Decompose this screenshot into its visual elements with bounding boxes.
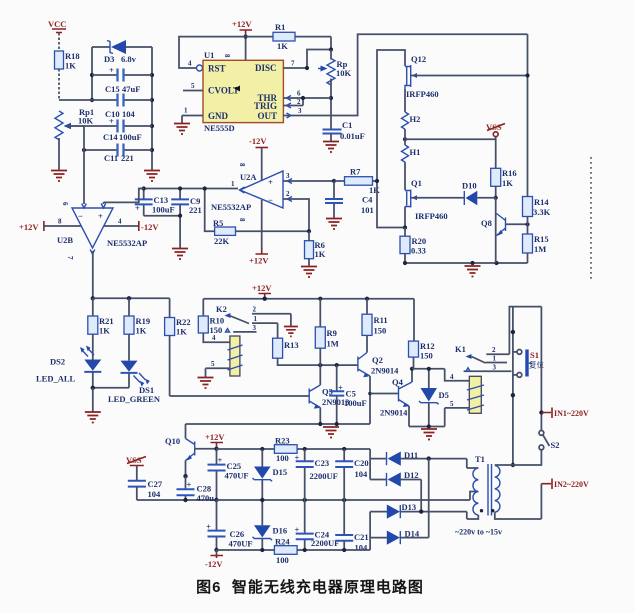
svg-text:8: 8 [238,163,246,167]
svg-text:C11: C11 [104,153,118,163]
svg-text:OUT: OUT [257,111,277,121]
svg-text:H1: H1 [410,147,421,157]
svg-text:C27: C27 [148,479,163,489]
svg-text:1: 1 [493,354,497,362]
svg-text:R11: R11 [374,315,388,325]
svg-text:1K: 1K [277,41,288,51]
svg-text:2: 2 [286,190,290,198]
svg-text:6: 6 [297,90,301,98]
svg-text:−: − [268,195,273,205]
svg-text:+: + [295,525,300,535]
svg-text:+: + [109,116,114,126]
svg-text:+12V: +12V [249,256,269,266]
svg-text:Q1: Q1 [411,178,422,188]
svg-text:Q10: Q10 [165,436,180,446]
svg-text:-12V: -12V [141,222,159,232]
svg-text:Q4: Q4 [392,377,404,387]
svg-text:+12V: +12V [205,432,225,442]
svg-text:IRFP460: IRFP460 [406,89,439,99]
svg-text:10K: 10K [336,68,352,78]
svg-text:100: 100 [276,453,289,463]
svg-text:−: − [78,211,83,221]
svg-text:IN1~220V: IN1~220V [554,409,589,418]
svg-text:4: 4 [118,218,122,226]
svg-text:5: 5 [211,360,215,368]
svg-text:R21: R21 [99,316,114,326]
svg-text:TRIG: TRIG [254,101,277,111]
svg-text:VCC: VCC [48,19,66,29]
svg-text:C23: C23 [315,458,330,468]
svg-text:4: 4 [212,334,216,342]
svg-text:1M: 1M [534,244,546,254]
svg-text:+: + [109,65,114,75]
svg-text:104: 104 [355,469,369,479]
svg-text:C4: C4 [362,195,373,205]
svg-text:DISC: DISC [255,63,277,73]
svg-text:C5: C5 [346,389,356,399]
svg-text:D13: D13 [402,502,417,512]
svg-text:R18: R18 [65,51,80,61]
svg-text:D3: D3 [104,54,114,64]
svg-text:GND: GND [208,111,229,121]
svg-text:D14: D14 [405,529,420,539]
svg-text:+: + [295,453,300,463]
svg-text:+12V: +12V [252,283,272,293]
svg-text:LED_ALL: LED_ALL [36,374,76,384]
svg-text:RST: RST [208,64,226,74]
svg-text:3.3K: 3.3K [533,207,551,217]
svg-text:2N9014: 2N9014 [371,366,399,376]
svg-text:0.33: 0.33 [411,246,426,256]
svg-text:100uF: 100uF [152,205,175,215]
svg-text:7: 7 [291,60,295,68]
svg-text:Q8: Q8 [481,218,492,228]
svg-text:-12V: -12V [205,559,223,569]
svg-text:470u: 470u [197,493,215,503]
svg-text:D12: D12 [404,470,419,480]
svg-text:C15: C15 [105,84,120,94]
svg-text:R20: R20 [412,236,427,246]
svg-text:100uF: 100uF [119,132,142,142]
svg-text:150: 150 [420,351,433,361]
svg-text:IN2~220V: IN2~220V [554,480,589,489]
svg-text:C14: C14 [103,132,118,142]
svg-text:221: 221 [121,153,134,163]
svg-text:470UF: 470UF [229,539,253,549]
svg-text:Q12: Q12 [411,54,426,64]
svg-text:4: 4 [450,373,454,381]
svg-text:3: 3 [298,107,302,115]
svg-text:5: 5 [450,400,454,408]
svg-text:5: 5 [191,82,195,90]
svg-text:K2: K2 [216,304,227,314]
svg-text:1: 1 [184,107,188,115]
svg-text:1K: 1K [65,61,76,71]
svg-text:1: 1 [254,315,258,323]
svg-text:4: 4 [188,60,192,68]
svg-text:C28: C28 [197,484,212,494]
svg-text:1K: 1K [136,326,147,336]
svg-text:+: + [135,203,140,213]
svg-text:U2B: U2B [57,235,73,245]
svg-text:100: 100 [276,555,289,565]
svg-text:IRFP460: IRFP460 [415,211,448,221]
svg-text:6: 6 [61,202,69,206]
svg-text:2: 2 [253,306,257,314]
svg-text:3: 3 [286,172,290,180]
svg-text:+12V: +12V [232,19,252,29]
svg-text:1K: 1K [99,326,110,336]
svg-text:8: 8 [223,54,231,58]
svg-text:D5: D5 [439,390,449,400]
svg-text:R9: R9 [327,328,337,338]
svg-text:LED_GREEN: LED_GREEN [108,394,161,404]
svg-text:U1: U1 [204,50,214,60]
svg-text:NE555D: NE555D [204,123,235,133]
svg-text:104: 104 [148,489,162,499]
svg-text:R24: R24 [275,537,290,547]
svg-text:+: + [338,383,343,393]
svg-text:1K: 1K [369,185,380,195]
svg-text:1M: 1M [327,339,339,349]
svg-text:C13: C13 [154,195,169,205]
svg-text:101: 101 [361,205,374,215]
svg-text:47uF: 47uF [122,84,140,94]
svg-text:R10: R10 [210,316,225,326]
svg-text:NE5532AP: NE5532AP [211,202,251,212]
svg-text:Q2: Q2 [372,355,383,365]
svg-text:R13: R13 [284,340,299,350]
svg-text:D16: D16 [273,526,288,536]
svg-text:C25: C25 [227,461,242,471]
svg-text:+: + [218,455,223,465]
svg-text:C20: C20 [354,458,369,468]
svg-text:221: 221 [189,205,202,215]
svg-text:470UF: 470UF [225,471,249,481]
svg-text:C26: C26 [230,529,245,539]
svg-text:2200UF: 2200UF [310,471,338,481]
svg-text:-12V: -12V [249,136,267,146]
svg-text:+12V: +12V [19,222,39,232]
svg-text:1: 1 [231,180,235,188]
svg-text:S1: S1 [530,350,539,360]
svg-text:3: 3 [493,364,497,372]
svg-text:22K: 22K [214,236,230,246]
svg-text:S2: S2 [551,440,560,450]
svg-text:10K: 10K [78,116,94,126]
svg-text:2200UF: 2200UF [311,538,339,548]
svg-text:R23: R23 [275,436,290,446]
svg-text:T1: T1 [475,454,485,464]
svg-text:8: 8 [58,218,62,226]
svg-text:1K: 1K [176,327,187,337]
svg-text:0.01uF: 0.01uF [340,131,365,141]
svg-text:R1: R1 [275,22,285,32]
svg-text:NE5532AP: NE5532AP [107,238,147,248]
svg-text:104: 104 [122,109,136,119]
svg-text:R19: R19 [136,316,151,326]
svg-text:7: 7 [66,256,74,260]
svg-text:C21: C21 [354,532,369,542]
svg-text:D11: D11 [404,450,418,460]
svg-text:~220v to ~15v: ~220v to ~15v [455,528,502,537]
svg-text:R16: R16 [502,168,517,178]
svg-text:1K: 1K [502,178,513,188]
svg-text:3: 3 [253,324,257,332]
svg-text:R14: R14 [534,197,549,207]
svg-text:100uF: 100uF [344,398,367,408]
svg-text:D15: D15 [273,467,288,477]
svg-text:+: + [206,522,211,532]
svg-text:2N9014: 2N9014 [380,408,408,418]
svg-text:104: 104 [355,543,369,553]
svg-text:DS2: DS2 [50,357,65,367]
svg-text:U2A: U2A [240,172,257,182]
svg-text:R5: R5 [213,218,223,228]
svg-text:R22: R22 [176,317,191,327]
svg-text:+: + [187,480,192,490]
svg-text:R7: R7 [350,167,361,177]
svg-text:2: 2 [297,98,301,106]
svg-text:D10: D10 [462,181,477,191]
svg-text:R15: R15 [534,234,549,244]
svg-text:K1: K1 [455,344,466,354]
svg-text:2: 2 [492,346,496,354]
svg-text:R12: R12 [420,341,435,351]
svg-text:+: + [268,177,273,187]
svg-text:1K: 1K [315,249,326,259]
svg-text:6.8v: 6.8v [121,54,137,64]
svg-text:150: 150 [374,326,387,336]
svg-text:CVOLT: CVOLT [208,86,239,96]
svg-text:+: + [98,211,103,221]
svg-text:8: 8 [238,218,246,222]
svg-text:C1: C1 [342,120,352,130]
svg-text:图6 智能无线充电器原理电路图: 图6 智能无线充电器原理电路图 [196,578,424,596]
svg-text:H2: H2 [410,114,421,124]
